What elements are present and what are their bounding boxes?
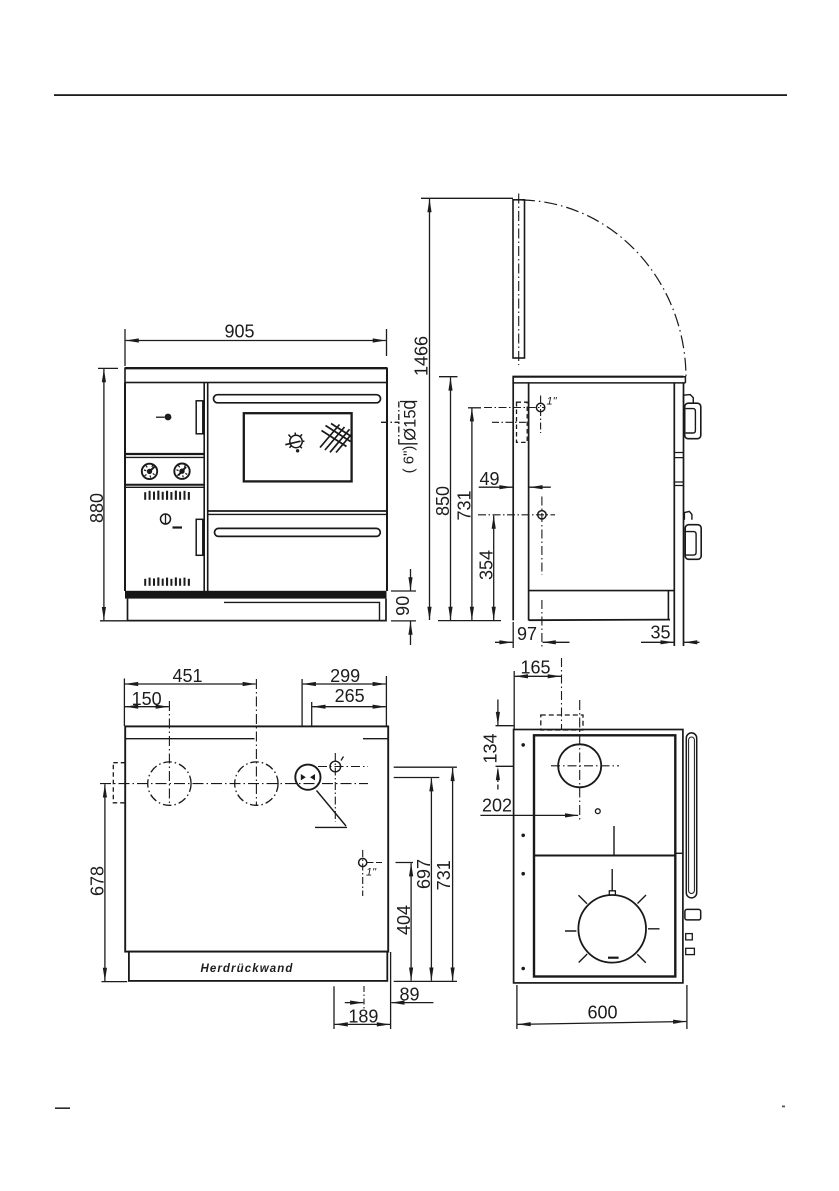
svg-text:451: 451: [172, 666, 202, 686]
svg-text:404: 404: [394, 905, 414, 935]
svg-text:97: 97: [517, 624, 537, 644]
svg-text:165: 165: [520, 658, 550, 678]
svg-text:134: 134: [481, 733, 501, 763]
svg-text:731: 731: [455, 490, 475, 520]
svg-text:850: 850: [433, 486, 453, 516]
svg-text:354: 354: [476, 550, 496, 580]
svg-text:880: 880: [87, 493, 107, 523]
svg-text:( 6"): ( 6"): [401, 446, 418, 474]
svg-text:678: 678: [88, 866, 108, 896]
svg-text:1": 1": [547, 396, 558, 408]
svg-text:299: 299: [330, 666, 360, 686]
svg-text:Herdrückwand: Herdrückwand: [200, 963, 293, 975]
svg-text:Ø150: Ø150: [402, 400, 420, 440]
svg-text:1466: 1466: [411, 336, 431, 376]
svg-text:731: 731: [434, 860, 454, 890]
svg-text:600: 600: [587, 1003, 617, 1023]
svg-text:35: 35: [650, 623, 670, 643]
svg-text:1": 1": [366, 867, 377, 879]
svg-text:49: 49: [479, 469, 499, 489]
svg-text:202: 202: [482, 796, 512, 816]
svg-text:89: 89: [399, 984, 419, 1004]
svg-text:697: 697: [414, 859, 434, 889]
svg-text:189: 189: [348, 1007, 378, 1027]
svg-text:90: 90: [393, 596, 413, 616]
svg-text:150: 150: [132, 689, 162, 709]
svg-text:905: 905: [224, 321, 254, 341]
svg-text:265: 265: [335, 686, 365, 706]
